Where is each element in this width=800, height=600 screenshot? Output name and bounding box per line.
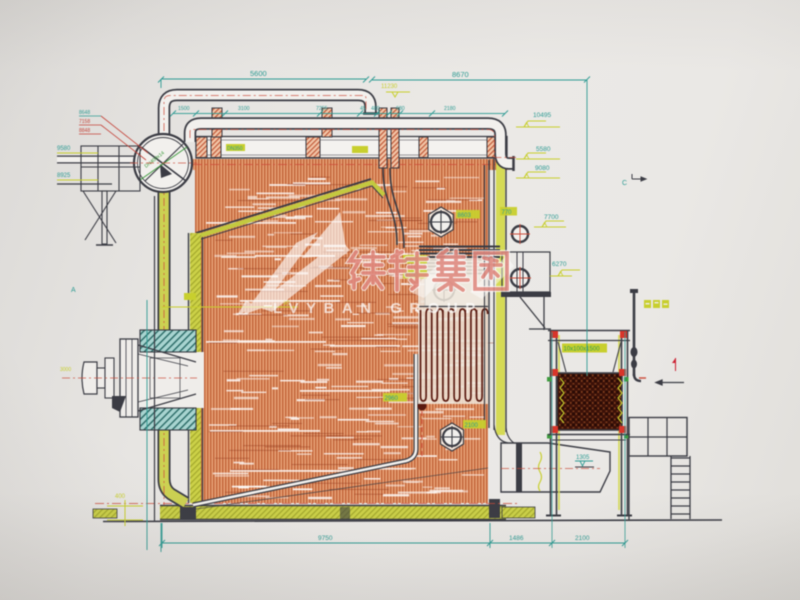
svg-text:7255: 7255	[316, 106, 328, 112]
svg-text:770: 770	[502, 210, 513, 216]
svg-text:9080: 9080	[535, 165, 550, 172]
svg-text:A: A	[71, 287, 76, 294]
svg-text:7700: 7700	[544, 214, 559, 221]
svg-text:6270: 6270	[552, 261, 567, 268]
svg-text:8925: 8925	[57, 173, 71, 179]
svg-text:480: 480	[371, 106, 380, 112]
svg-text:11230: 11230	[381, 84, 398, 90]
svg-text:2960: 2960	[385, 396, 399, 402]
svg-text:DN350: DN350	[227, 146, 243, 152]
svg-text:3000: 3000	[60, 367, 71, 373]
svg-text:7158: 7158	[79, 119, 90, 125]
svg-text:45: 45	[360, 106, 366, 112]
svg-text:1500: 1500	[178, 106, 190, 112]
svg-text:8848: 8848	[79, 128, 90, 134]
svg-text:3100: 3100	[238, 106, 250, 112]
svg-text:C: C	[622, 180, 627, 187]
svg-text:10x100x1500: 10x100x1500	[564, 347, 601, 353]
svg-text:2180: 2180	[444, 106, 456, 112]
svg-text:8603: 8603	[458, 213, 472, 219]
svg-text:400: 400	[115, 494, 126, 500]
svg-text:9580: 9580	[57, 146, 71, 152]
svg-text:1305: 1305	[576, 455, 590, 461]
svg-text:10495: 10495	[533, 112, 551, 119]
svg-text:1486: 1486	[509, 535, 524, 542]
svg-text:5600: 5600	[250, 69, 267, 78]
svg-text:2100: 2100	[575, 535, 590, 542]
svg-text:680: 680	[396, 106, 405, 112]
svg-text:2100: 2100	[465, 423, 479, 429]
svg-text:8648: 8648	[79, 110, 90, 116]
svg-text:5580: 5580	[536, 146, 551, 153]
svg-text:9750: 9750	[318, 535, 333, 542]
svg-text:LVYBAN GROUP: LVYBAN GROUP	[273, 300, 483, 317]
svg-text:8670: 8670	[452, 70, 469, 79]
